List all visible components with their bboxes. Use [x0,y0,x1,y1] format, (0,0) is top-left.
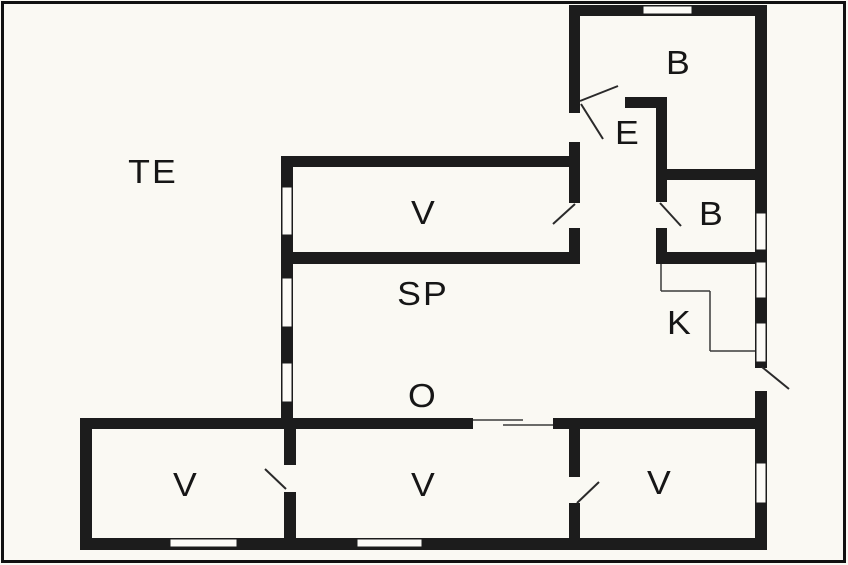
room-label-e: E [615,114,641,152]
wall-b-bottom-room-bottom-wall [656,252,767,264]
room-label-v-middle: V [411,466,437,504]
entry-exterior-door-gap [569,113,580,142]
room-label-sp: SP [397,275,449,313]
bottom-wall-window-1 [170,539,237,547]
wall-b-rooms-divider-wall [656,169,767,180]
room-label-k: K [667,304,693,342]
floor-plan-page: TE V SP O B E B K V V V [0,0,848,565]
wall-corridor-right-wall [656,97,667,264]
room-label-v-right: V [647,464,673,502]
right-wall-window-1 [756,213,766,250]
left-wall-window-1 [282,187,292,235]
room-label-b-bottom: B [699,195,725,233]
left-wall-window-3 [282,363,292,402]
right-room-door-gap [569,477,580,503]
room-label-v-left: V [173,466,199,504]
left-wall-window-2 [282,278,292,327]
room-label-v-top: V [411,194,437,232]
room-label-b-top: B [666,44,692,82]
room-label-o: O [408,377,438,415]
wall-v-top-room-top-wall [281,156,580,167]
wall-bottom-row-top-wall-right [553,418,767,429]
kitchen-exterior-door-gap [755,368,767,391]
right-wall-window-3 [756,323,766,362]
wall-bottom-left-room-left-wall [80,418,92,550]
room-label-terrace: TE [128,153,178,191]
bottom-wall-window-2 [357,539,422,547]
top-wall-window [643,6,692,14]
right-wall-window-2 [756,262,766,298]
wall-v-top-room-bottom-wall [281,252,580,264]
wall-bottom-row-top-wall-left [80,418,473,429]
right-wall-window-4 [756,463,766,503]
